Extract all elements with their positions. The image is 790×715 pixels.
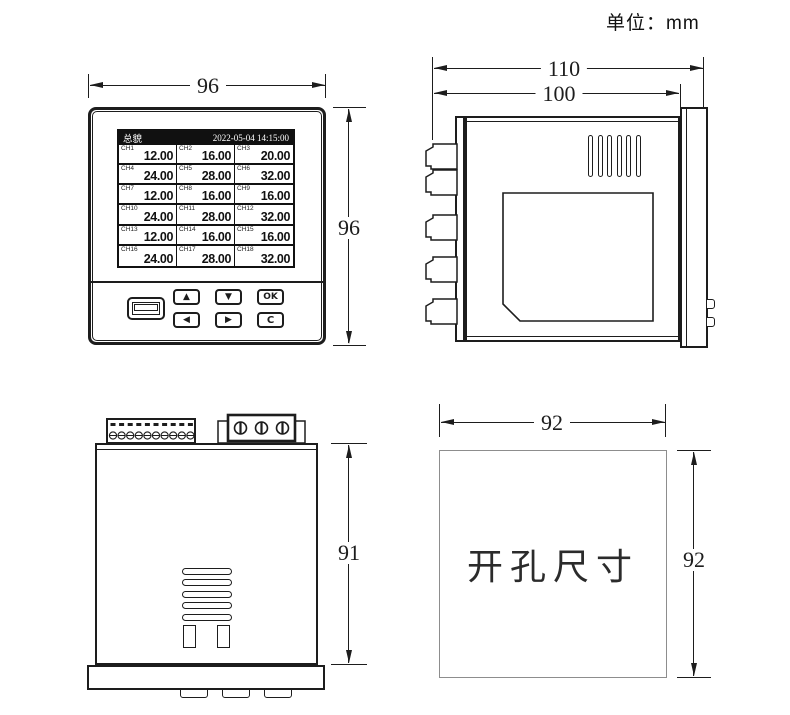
vent-slot <box>182 579 232 586</box>
channel-cell: CH1024.00 <box>119 205 177 225</box>
channel-cell: CH112.00 <box>119 145 177 165</box>
front-tab <box>706 299 715 309</box>
cancel-button: C <box>257 312 284 328</box>
front-tab <box>706 317 715 327</box>
vent-slot <box>598 135 603 177</box>
panel-divider <box>91 281 323 283</box>
ok-button: OK <box>257 289 284 305</box>
channel-cell: CH1232.00 <box>235 205 293 225</box>
arrowhead-icon <box>441 419 454 425</box>
vent-slot <box>617 135 622 177</box>
vent-slot <box>626 135 631 177</box>
dimension-value: 96 <box>331 217 367 239</box>
channel-cell: CH1416.00 <box>177 226 235 246</box>
extension-line <box>432 57 433 140</box>
extension-line <box>331 664 367 665</box>
key-bump <box>222 689 250 698</box>
down-button: ▼ <box>215 289 242 305</box>
vent-slot <box>636 135 641 177</box>
rear-connectors <box>105 413 307 445</box>
extension-line <box>665 404 666 437</box>
power-terminal-3pin <box>218 415 305 443</box>
channel-cell: CH528.00 <box>177 165 235 185</box>
case-body-top-view <box>95 443 318 665</box>
unit-label: 单位：mm <box>606 8 700 35</box>
vent-slot <box>182 568 232 575</box>
arrowhead-icon <box>690 65 703 71</box>
arrowhead-icon <box>90 82 103 88</box>
extension-line <box>88 74 89 98</box>
key-bump <box>264 689 292 698</box>
screen-datetime: 2022-05-04 14:15:00 <box>213 133 289 143</box>
arrowhead-icon <box>652 419 665 425</box>
dimension-value: 92 <box>676 549 712 571</box>
key-bump <box>180 689 208 698</box>
right-button: ▶ <box>215 312 242 328</box>
extension-line <box>325 74 326 98</box>
front-panel: 总貌 2022-05-04 14:15:00 CH112.00 CH216.00… <box>88 107 326 345</box>
channel-cell: CH1128.00 <box>177 205 235 225</box>
usb-tongue <box>134 304 158 311</box>
arrowhead-icon <box>666 90 679 96</box>
front-bezel-side <box>680 107 708 348</box>
extension-line <box>331 443 367 444</box>
top-edge-line <box>467 121 678 122</box>
screen-header: 总貌 2022-05-04 14:15:00 <box>119 131 293 145</box>
extension-line <box>333 345 366 346</box>
dimension-value: 92 <box>534 412 570 434</box>
side-inner-panel <box>500 190 656 324</box>
extension-line <box>439 404 440 437</box>
vent-slot <box>182 591 232 598</box>
channel-cell: CH1312.00 <box>119 226 177 246</box>
left-button: ◀ <box>173 312 200 328</box>
channel-cell: CH1728.00 <box>177 246 235 266</box>
channel-cell: CH216.00 <box>177 145 235 165</box>
usb-port <box>127 297 165 320</box>
case-window <box>217 625 230 648</box>
channel-cell: CH916.00 <box>235 185 293 205</box>
up-button: ▲ <box>173 289 200 305</box>
bottom-edge-line <box>467 336 678 337</box>
case-edge-line <box>97 449 316 450</box>
arrowhead-icon <box>691 663 697 676</box>
dimension-value: 110 <box>541 58 587 80</box>
channel-cell: CH1624.00 <box>119 246 177 266</box>
channel-cell: CH1516.00 <box>235 226 293 246</box>
terminal-strip-10pin <box>107 419 195 443</box>
dimension-value: 100 <box>536 83 583 105</box>
arrowhead-icon <box>434 65 447 71</box>
dimension-value: 91 <box>331 542 367 564</box>
terminal-blocks-side <box>424 138 458 330</box>
bezel-face-line <box>686 109 687 346</box>
vent-slot <box>182 614 232 621</box>
arrowhead-icon <box>346 445 352 458</box>
extension-line <box>677 677 711 678</box>
channel-grid: CH112.00 CH216.00 CH320.00 CH424.00 CH52… <box>119 145 293 266</box>
arrowhead-icon <box>312 82 325 88</box>
cutout-label: 开孔尺寸 <box>467 538 639 590</box>
channel-cell: CH424.00 <box>119 165 177 185</box>
arrowhead-icon <box>434 90 447 96</box>
extension-line <box>333 107 366 108</box>
arrowhead-icon <box>346 331 352 344</box>
channel-cell: CH320.00 <box>235 145 293 165</box>
screen-title: 总貌 <box>123 131 142 145</box>
case-window <box>183 625 196 648</box>
channel-cell: CH816.00 <box>177 185 235 205</box>
vent-slot <box>182 602 232 609</box>
extension-line <box>677 450 711 451</box>
vent-slot <box>607 135 612 177</box>
vent-slot <box>588 135 593 177</box>
channel-cell: CH1832.00 <box>235 246 293 266</box>
channel-cell: CH712.00 <box>119 185 177 205</box>
front-bezel-top-view <box>87 665 325 690</box>
channel-cell: CH632.00 <box>235 165 293 185</box>
dimension-value: 96 <box>190 75 226 97</box>
extension-line <box>703 57 704 107</box>
arrowhead-icon <box>691 452 697 465</box>
arrowhead-icon <box>346 650 352 663</box>
dimension-drawing: 单位：mm 96 96 总貌 2022-05-04 14:15:00 CH112… <box>0 0 790 715</box>
lcd-screen: 总貌 2022-05-04 14:15:00 CH112.00 CH216.00… <box>117 129 295 268</box>
panel-cutout-square: 开孔尺寸 <box>439 450 667 678</box>
arrowhead-icon <box>346 109 352 122</box>
